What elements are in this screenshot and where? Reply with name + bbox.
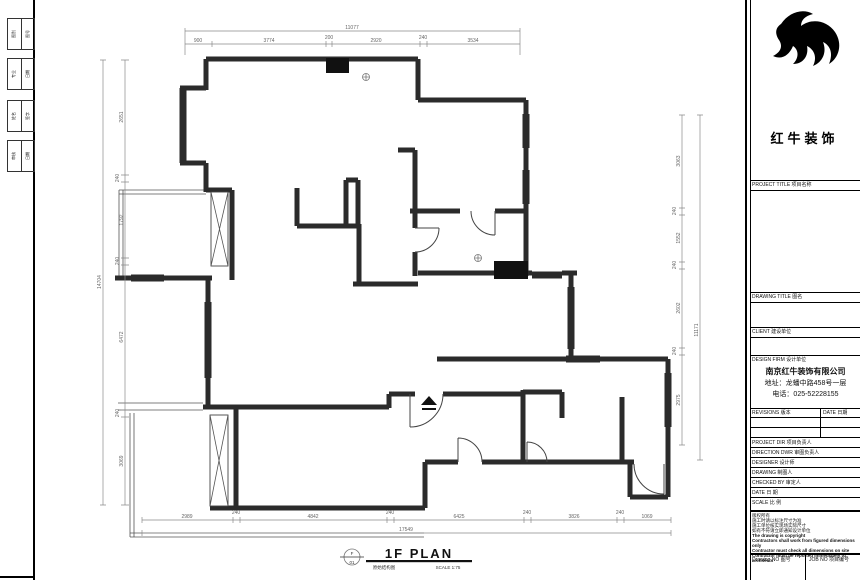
bubble-bottom-text: 01	[349, 560, 355, 565]
design-firm-label: DESIGN FIRM 设计单位	[752, 356, 806, 363]
info-row-label: DESIGNER 设计师	[752, 459, 795, 466]
fold-cell-label: 日期	[25, 152, 31, 160]
divider	[751, 417, 860, 418]
dim-label: 11171	[694, 323, 700, 336]
dim-label: 3774	[263, 38, 274, 44]
revisions-column-divider	[820, 408, 821, 437]
dim-label: 2651	[119, 111, 125, 122]
fold-signoff-box: 审核 日期	[7, 140, 35, 172]
fold-cell-label: 图别	[11, 30, 17, 38]
plan-subtitle: 原始结构图	[373, 564, 396, 571]
company-phone: 电话：025-52228155	[751, 389, 860, 400]
fold-cell: 日期	[22, 59, 35, 89]
fold-cell-label: 审核	[11, 152, 17, 160]
dim-label: 240	[616, 510, 625, 516]
drawing-title-label: DRAWING TITLE 图名	[752, 293, 802, 300]
divider	[751, 467, 860, 468]
dim-label: 240	[672, 261, 678, 270]
balcony-lines	[118, 190, 424, 537]
flue-solid	[326, 58, 349, 73]
entry-arrow-icon	[421, 396, 437, 405]
dim-label: 6472	[119, 331, 125, 342]
job-no-label: JOB NO 项目编号	[809, 556, 849, 563]
fold-cell-label: 专业	[11, 70, 17, 78]
dim-label: 240	[115, 257, 121, 266]
fold-cell: 图别	[8, 19, 22, 49]
dim-label: 240	[672, 207, 678, 216]
dim-label: 4842	[307, 514, 318, 520]
bottom-column-divider	[805, 553, 806, 580]
drawing-sheet: { "plan_footer": { "bubble_top": "F", "b…	[0, 0, 860, 580]
dim-label: 240	[115, 174, 121, 183]
fold-cell-label: 签字	[25, 112, 31, 120]
dim-label: 3826	[568, 514, 579, 520]
divider	[751, 427, 860, 428]
fold-cell: 专业	[8, 59, 22, 89]
plan-title-group: F 01 1F PLAN 原始结构图 SCALE 1:75	[340, 546, 472, 571]
title-block-inner-border	[750, 0, 751, 580]
fold-cell-label: 姓名	[11, 112, 17, 120]
plan-scale: SCALE 1:75	[436, 565, 461, 570]
flue-solid	[494, 261, 528, 279]
dim-label: 240	[386, 510, 395, 516]
dim-label: 1792	[119, 214, 125, 225]
company-logo-icon	[759, 6, 851, 116]
dim-label: 2920	[370, 38, 381, 44]
fold-cell: 日期	[22, 141, 35, 171]
fold-cell: 签字	[22, 101, 35, 131]
dim-label: 200	[325, 35, 334, 41]
dim-label: 1552	[676, 232, 682, 243]
dim-label: 2989	[181, 514, 192, 520]
sheet-fold-foot	[0, 576, 35, 578]
divider	[751, 497, 860, 498]
dim-label: 240	[115, 409, 121, 418]
fold-cell: 审核	[8, 141, 22, 171]
fold-cell-label: 图号	[25, 30, 31, 38]
dim-label: 3534	[467, 38, 478, 44]
info-row-label: DATE 日 期	[752, 489, 778, 496]
fold-signoff-box: 图别 图号	[7, 18, 35, 50]
divider	[751, 457, 860, 458]
client-label: CLIENT 建设单位	[752, 328, 791, 335]
dim-label: 2602	[676, 302, 682, 313]
fold-signoff-box: 专业 日期	[7, 58, 35, 90]
divider	[751, 337, 860, 338]
company-info: 南京红牛装饰有限公司 地址：龙蟠中路458号一层 电话：025-52228155	[751, 366, 860, 400]
divider	[751, 477, 860, 478]
divider	[751, 447, 860, 448]
revisions-date-label: DATE 日期	[823, 409, 847, 416]
dim-label: 2975	[676, 394, 682, 405]
divider	[751, 437, 860, 438]
company-logo-text: 红牛装饰	[747, 128, 860, 147]
fold-cell: 姓名	[8, 101, 22, 131]
floor-plan-canvas: 11077 900 3774 200 2920 240 3534 17549 2…	[40, 0, 745, 580]
divider	[751, 302, 860, 303]
plan-title: 1F PLAN	[385, 546, 453, 561]
title-block: 红牛装饰 PROJECT TITLE 项目名称 DRAWING TITLE 图名…	[745, 0, 860, 580]
dim-label: 240	[419, 35, 428, 41]
dim-label: 1069	[641, 514, 652, 520]
info-row-label: CHECKED BY 审定人	[752, 479, 801, 486]
door-swings	[410, 211, 664, 494]
dim-label: 900	[194, 38, 203, 44]
dim-label: 11077	[345, 25, 359, 31]
info-row-label: DRAWING 制图人	[752, 469, 792, 476]
revisions-label: REVISIONS 版本	[752, 409, 791, 416]
dim-label: 240	[672, 347, 678, 356]
dim-label: 240	[523, 510, 532, 516]
bubble-top-text: F	[351, 551, 354, 556]
fold-signoff-box: 姓名 签字	[7, 100, 35, 132]
drawing-no-label: Drawing NO 图号	[752, 556, 791, 563]
plan-title-underline	[366, 560, 472, 562]
company-address: 地址：龙蟠中路458号一层	[751, 378, 860, 389]
dim-label: 17549	[399, 527, 413, 533]
note-line: Contractors shall work from figured dime…	[752, 538, 860, 548]
info-row-label: DIRECTION DWR 审图负责人	[752, 449, 819, 456]
info-row-label: PROJECT DIR 项目负责人	[752, 439, 812, 446]
info-row-label: SCALE 比 例	[752, 499, 781, 506]
dim-label: 3063	[676, 155, 682, 166]
divider	[751, 487, 860, 488]
company-name: 南京红牛装饰有限公司	[751, 366, 860, 378]
project-title-label: PROJECT TITLE 项目名称	[752, 181, 812, 188]
fold-cell: 图号	[22, 19, 35, 49]
dim-label: 6425	[453, 514, 464, 520]
divider	[751, 190, 860, 191]
fold-cell-label: 日期	[25, 70, 31, 78]
dim-label: 240	[232, 510, 241, 516]
divider	[751, 510, 860, 512]
dim-label: 3069	[119, 455, 125, 466]
dim-label: 14704	[97, 275, 103, 289]
fold-strip: 图别 图号 专业 日期 姓名 签字 审核 日期	[0, 0, 40, 580]
